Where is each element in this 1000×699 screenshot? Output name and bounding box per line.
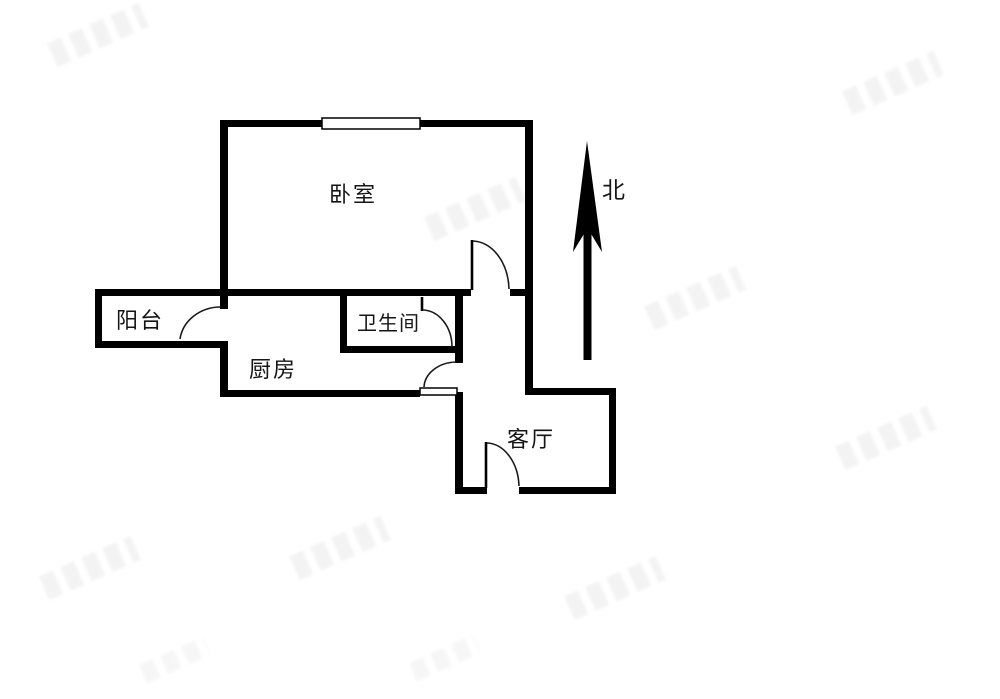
door-leaves: [422, 240, 486, 488]
door-arcs: [180, 241, 519, 486]
wall-living-bottom-left: [455, 487, 487, 494]
north-arrow-shaft: [584, 228, 592, 360]
floor-plan-page: 卧室 阳台 厨房 卫生间 客厅 北: [0, 0, 1000, 699]
room-label-bedroom: 卧室: [329, 185, 377, 207]
wall-kitchen-left: [220, 341, 228, 397]
window-bedroom: [322, 118, 420, 129]
wall-balcony-top: [95, 289, 228, 296]
north-label: 北: [602, 180, 625, 203]
wall-kitchen-bottom: [220, 390, 420, 397]
north-arrow: [573, 141, 602, 360]
room-label-kitchen: 厨房: [249, 360, 297, 382]
door-arc-kitchen: [424, 362, 456, 387]
wall-living-bottom-right: [519, 487, 616, 494]
wall-bathroom-bottom: [340, 346, 462, 353]
wall-living-top: [525, 388, 616, 395]
wall-living-right: [609, 388, 616, 494]
wall-balcony-door-stub: [220, 296, 228, 309]
door-arc-bedroom: [473, 241, 509, 289]
room-label-bathroom: 卫生间: [357, 313, 420, 333]
door-arc-bathroom: [423, 310, 452, 347]
room-label-balcony: 阳台: [116, 311, 164, 333]
wall-balcony-left: [95, 289, 102, 348]
wall-balcony-bottom: [95, 341, 224, 348]
wall-bedroom-bottom-stub: [510, 289, 533, 296]
wall-corridor-left: [455, 296, 463, 363]
wall-bedroom-bottom: [220, 289, 471, 296]
door-leaf-kitchen: [420, 388, 457, 395]
wall-east: [525, 120, 533, 395]
wall-bathroom-left: [340, 296, 347, 353]
room-label-living-room: 客厅: [507, 430, 555, 452]
wall-living-left: [455, 392, 463, 494]
door-arc-balcony: [180, 307, 221, 339]
wall-bedroom-left: [220, 120, 228, 296]
